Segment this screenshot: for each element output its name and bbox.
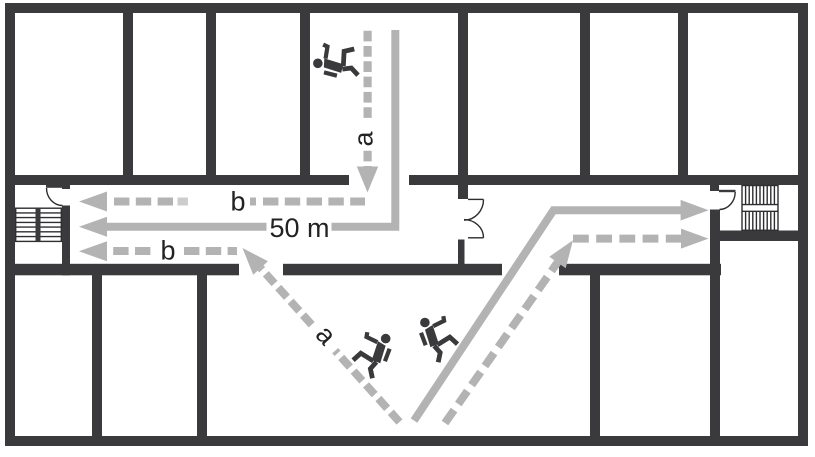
svg-text:50 m: 50 m: [270, 213, 330, 243]
svg-text:b: b: [161, 235, 176, 265]
svg-text:b: b: [231, 187, 246, 217]
svg-text:a: a: [349, 131, 379, 147]
